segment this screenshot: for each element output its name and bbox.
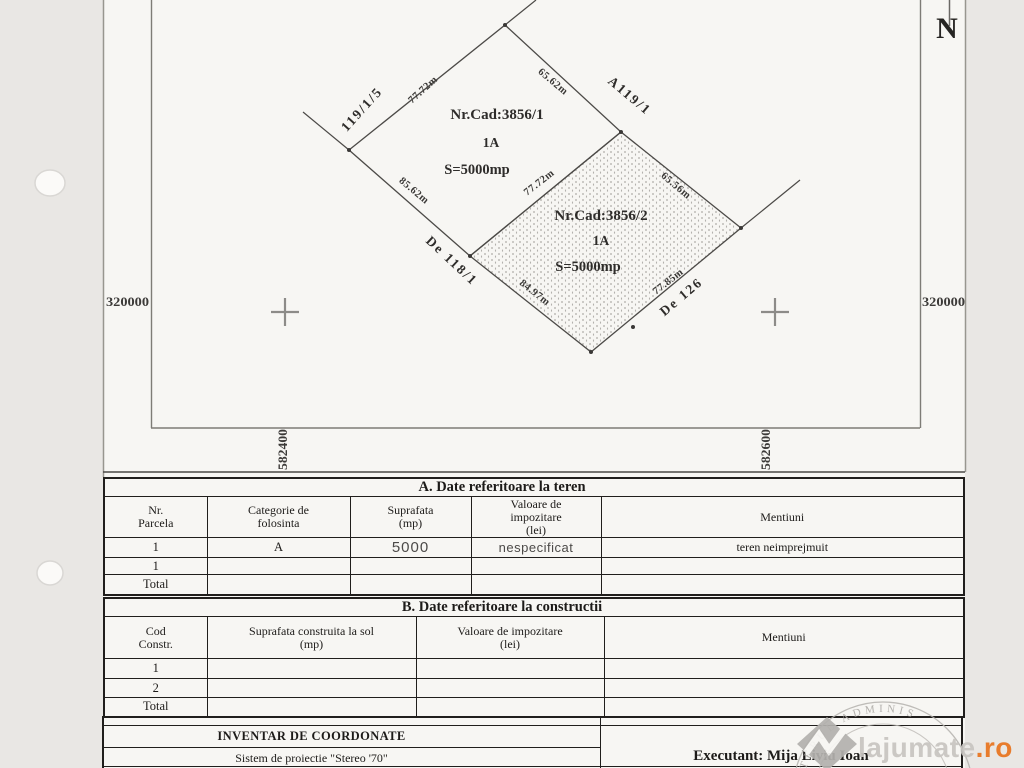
col-header-suprafata-construita: Suprafata construita la sol (mp) xyxy=(207,617,416,659)
col-header-categorie: Categorie de folosinta xyxy=(207,497,350,538)
footer-bottom-line xyxy=(103,766,963,767)
table-row: 1 A 5000 nespecificat teren neimprejmuit xyxy=(104,538,964,558)
cell-cod: 1 xyxy=(104,659,207,679)
cell-suprafata: 5000 xyxy=(350,538,471,558)
cell-nr-parcela: 1 xyxy=(104,558,207,575)
footer-right-border xyxy=(961,716,963,768)
col-header-nr-parcela: Nr. Parcela xyxy=(104,497,207,538)
table-row: 1 xyxy=(104,558,964,575)
page-margin-circle xyxy=(35,170,65,585)
watermark-tld-text: .ro xyxy=(976,732,1013,763)
cell-total-label: Total xyxy=(104,698,207,717)
cell-valoare: nespecificat xyxy=(471,538,601,558)
table-teren-title: A. Date referitoare la teren xyxy=(104,478,964,497)
table-teren: A. Date referitoare la teren Nr. Parcela… xyxy=(103,477,965,596)
executant-label: Executant: Mija Liviu Ioan xyxy=(601,725,961,767)
col-header-valoare: Valoare de impozitare (lei) xyxy=(416,617,604,659)
table-row-total: Total xyxy=(104,575,964,595)
projection-system-label: Sistem de proiectie "Stereo '70" xyxy=(103,748,600,768)
cell-cod: 2 xyxy=(104,679,207,698)
cell-total-label: Total xyxy=(104,575,207,595)
cell-categorie: A xyxy=(207,538,350,558)
footer-divider-line xyxy=(103,716,963,718)
table-row: 1 xyxy=(104,659,964,679)
cell-nr-parcela: 1 xyxy=(104,538,207,558)
col-header-cod-constr: Cod Constr. xyxy=(104,617,207,659)
col-header-mentiuni: Mentiuni xyxy=(601,497,964,538)
table-row: 2 xyxy=(104,679,964,698)
col-header-suprafata: Suprafata (mp) xyxy=(350,497,471,538)
col-header-mentiuni: Mentiuni xyxy=(604,617,964,659)
col-header-valoare: Valoare de impozitare (lei) xyxy=(471,497,601,538)
table-constructii-title: B. Date referitoare la constructii xyxy=(104,598,964,617)
table-constructii: B. Date referitoare la constructii Cod C… xyxy=(103,597,965,718)
inventar-coordonate-title: INVENTAR DE COORDONATE xyxy=(103,725,600,748)
table-row-total: Total xyxy=(104,698,964,717)
cell-mentiuni: teren neimprejmuit xyxy=(601,538,964,558)
